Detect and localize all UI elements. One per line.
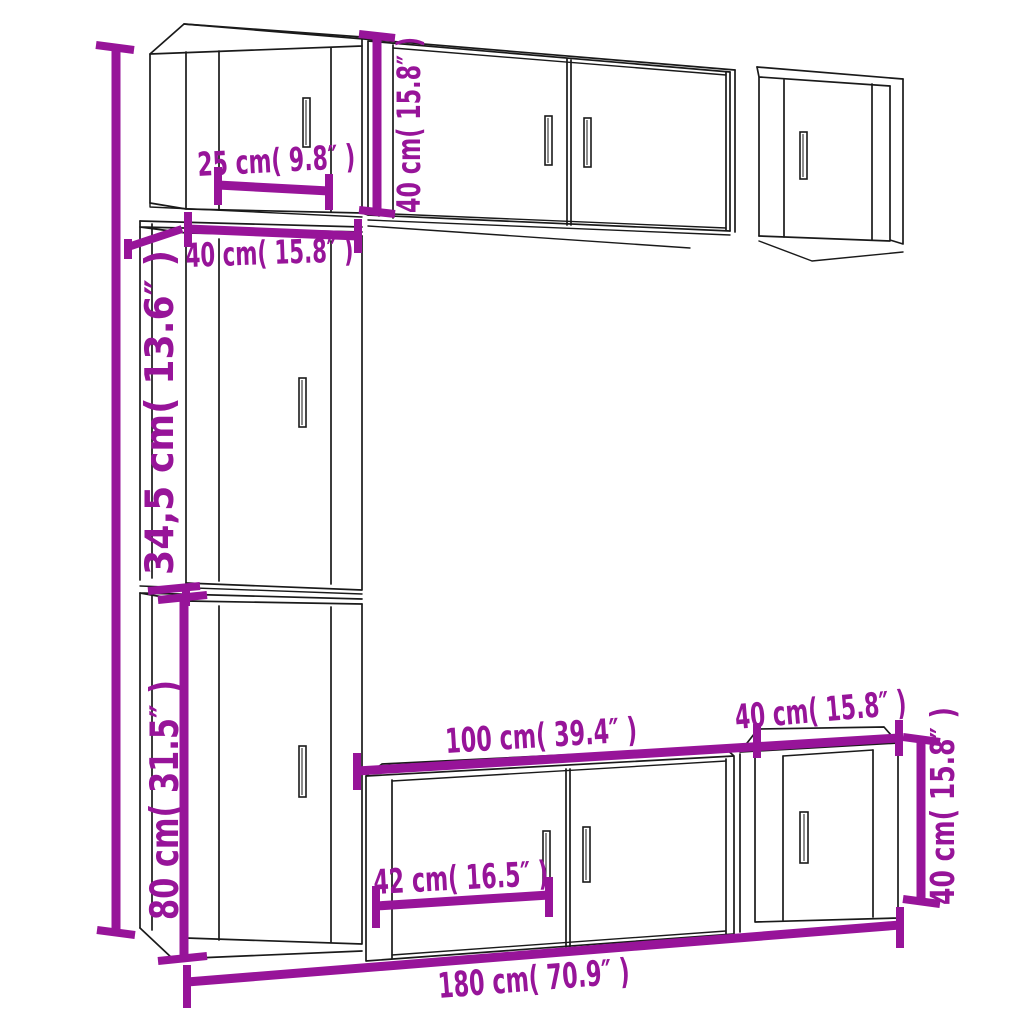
furniture-dimension-diagram: 40 cm( 15.8″ ) 25 cm( 9.8″ ) 40 cm( 15.8… <box>0 0 1024 1024</box>
cabinet-top-right <box>735 67 903 261</box>
cabinet-bottom-right <box>740 727 898 932</box>
cabinet-bottom-wide <box>366 747 734 961</box>
dimension-total-width: 180 cm( 70.9″ ) <box>187 907 900 1008</box>
dim-label-bottom-right-width: 40 cm( 15.8″ ) <box>733 683 908 738</box>
dimension-left-column-width: 40 cm( 15.8″ ) <box>185 212 358 275</box>
dim-label-top-cabinet-height: 40 cm( 15.8″ ) <box>390 37 428 213</box>
dimension-top-cabinet-height: 40 cm( 15.8″ ) <box>359 34 428 214</box>
dim-label-middle-left-height: 34,5 cm( 13.6″ ) <box>138 250 183 575</box>
dimension-bottom-widths: 100 cm( 39.4″ ) 40 cm( 15.8″ ) <box>357 683 908 790</box>
dim-label-bottom-left-height: 80 cm( 31.5″ ) <box>143 680 188 920</box>
diagram-canvas: 40 cm( 15.8″ ) 25 cm( 9.8″ ) 40 cm( 15.8… <box>0 0 1024 1024</box>
dim-label-top-door-width: 25 cm( 9.8″ ) <box>196 137 356 184</box>
dimension-bottom-door-width: 42 cm( 16.5″ ) <box>372 854 549 928</box>
dimension-top-door-width: 25 cm( 9.8″ ) <box>196 137 356 210</box>
dimension-bottom-right-height: 40 cm( 15.8″ ) <box>903 707 962 905</box>
dim-label-bottom-right-height: 40 cm( 15.8″ ) <box>923 707 962 905</box>
dimension-overall-height-line <box>96 45 135 935</box>
dim-label-left-column-width: 40 cm( 15.8″ ) <box>185 230 354 275</box>
dimension-middle-left-height: 34,5 cm( 13.6″ ) <box>128 229 200 606</box>
